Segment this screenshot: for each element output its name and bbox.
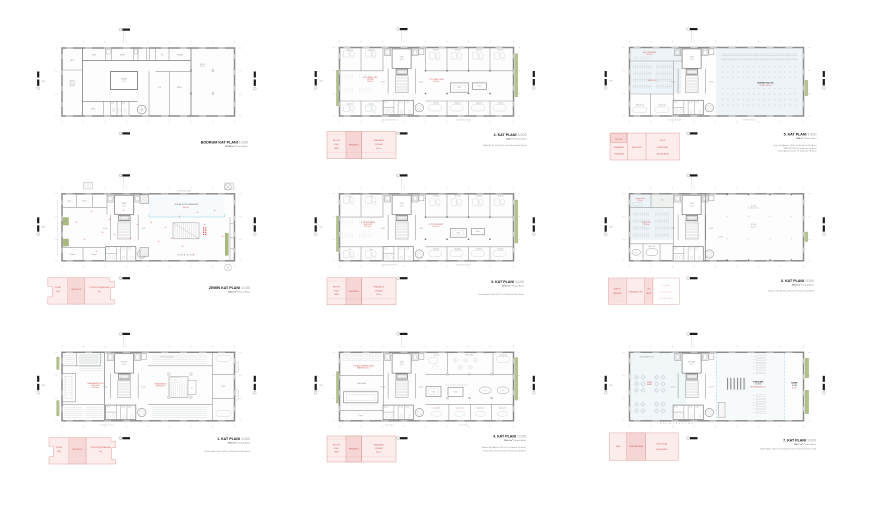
svg-text:36.40: 36.40 [690, 364, 694, 366]
svg-text:BEKLEYEN: BEKLEYEN [333, 140, 340, 142]
svg-text:B.205: B.205 [478, 86, 482, 88]
svg-text:B. 7.06: B. 7.06 [792, 388, 797, 390]
svg-text:B.304: B.304 [456, 233, 460, 235]
svg-text:S.03: S.03 [158, 87, 161, 89]
svg-text:Ofis Birimi: Ofis Birimi [433, 196, 440, 198]
svg-text:B.204: B.204 [457, 87, 461, 89]
svg-text:SS 3: SS 3 [609, 385, 612, 387]
svg-text:B.1.06: B.1.06 [751, 224, 756, 226]
svg-text:Ofis Birimi: Ofis Birimi [433, 249, 440, 251]
svg-text:K.604: K.604 [671, 228, 675, 230]
svg-text:36.40: 36.40 [400, 205, 404, 207]
svg-text:Toplantı (My Alanılar 134.2 m²: Toplantı (My Alanılar 134.2 m² Schlüssel… [481, 446, 526, 449]
svg-text:370.80 m² (Kapalı Alan): 370.80 m² (Kapalı Alan) [225, 145, 248, 148]
svg-text:SS 3: SS 3 [609, 80, 612, 82]
svg-text:36.40: 36.40 [690, 205, 694, 207]
svg-text:K.005: K.005 [142, 228, 146, 230]
svg-text:B.305: B.305 [476, 231, 480, 233]
svg-text:450.2 m² (Kapalı Alan): 450.2 m² (Kapalı Alan) [228, 441, 250, 444]
svg-text:Kafe Köş.: Kafe Köş. [434, 354, 440, 356]
svg-text:Fuaye & Ofis Alanları (120.5 m: Fuaye & Ofis Alanları (120.5 m² Schlüsse… [768, 289, 814, 292]
svg-text:B.405: B.405 [454, 392, 458, 394]
svg-text:MUTFAK: MUTFAK [688, 361, 696, 364]
svg-text:YEMEKHANE: YEMEKHANE [753, 381, 765, 384]
svg-text:Giriş: Giriş [99, 451, 102, 453]
svg-text:K.705: K.705 [709, 387, 713, 389]
svg-text:SS 3: SS 3 [609, 227, 612, 229]
svg-text:Giriş: Giriş [98, 291, 101, 293]
svg-text:GİRİŞ HOLÜ: GİRİŞ HOLÜ [178, 254, 195, 257]
svg-text:36.40: 36.40 [690, 59, 694, 61]
svg-text:6. KAT PLANI 1/100: 6. KAT PLANI 1/100 [781, 279, 814, 283]
svg-text:Ofis Birimi: Ofis Birimi [454, 249, 461, 251]
svg-text:Çalışma Od.: Çalışma Od. [499, 354, 507, 356]
svg-text:DEPO: DEPO [70, 60, 75, 62]
svg-text:K.004: K.004 [103, 228, 107, 230]
svg-text:Depo: Depo [68, 200, 72, 202]
svg-text:ATÖLYE: ATÖLYE [121, 361, 128, 364]
svg-text:Dükkan: Dükkan [70, 254, 75, 256]
svg-text:Çalışma Birimi: Çalışma Birimi [385, 424, 395, 426]
svg-text:ZEMİN KAT PLANI 1/100: ZEMİN KAT PLANI 1/100 [209, 286, 250, 290]
svg-text:B.B.01: B.B.01 [200, 64, 205, 66]
svg-text:YABUKİ 120.5 m² Schlüssel Tip: YABUKİ 120.5 m² Schlüssel Tip Birim [783, 147, 816, 150]
svg-text:500.6 m² (Kapalı Alan): 500.6 m² (Kapalı Alan) [504, 439, 526, 442]
svg-text:36.40: 36.40 [400, 59, 404, 61]
svg-text:Bekleme Od.: Bekleme Od. [636, 105, 645, 107]
svg-text:Ofis: Ofis [370, 196, 373, 198]
svg-text:K.305: K.305 [419, 228, 423, 230]
svg-text:Dükkan: Dükkan [91, 254, 96, 256]
svg-text:5. KAT PLANI 1/100: 5. KAT PLANI 1/100 [784, 132, 817, 136]
svg-text:Mutfak Alanı (345.75 m² Schlüs: Mutfak Alanı (345.75 m² Schlüssel Tipi m… [760, 448, 816, 451]
svg-text:Kiralanabilir Ofisler (34.8 m²: Kiralanabilir Ofisler (34.8 m² Schlüssel… [483, 449, 526, 452]
svg-text:SEMİNER SALONU: SEMİNER SALONU [757, 82, 774, 85]
svg-text:Ofis: Ofis [349, 249, 352, 251]
svg-text:36.40: 36.40 [122, 205, 126, 207]
svg-text:Ofis Birimi: Ofis Birimi [497, 249, 504, 251]
svg-text:K.102: K.102 [103, 387, 107, 389]
svg-text:500.7 m² (Kapalı Alan): 500.7 m² (Kapalı Alan) [794, 443, 816, 446]
svg-text:236.20: 236.20 [200, 66, 204, 68]
svg-text:SS 3: SS 3 [42, 385, 45, 387]
svg-text:Çalışma Od.: Çalışma Od. [456, 408, 464, 410]
svg-text:Y E R L E Ş K E P L A N I: Y E R L E Ş K E P L A N I [657, 422, 696, 425]
svg-text:Çeşurf Alanılar 120.5 m² Schlü: Çeşurf Alanılar 120.5 m² Schlüssel Tip B… [777, 150, 816, 153]
svg-text:K.404: K.404 [381, 387, 385, 389]
svg-text:BODRUM KAT PLANI 1/100: BODRUM KAT PLANI 1/100 [201, 141, 248, 145]
svg-text:Ofis Birimi: Ofis Birimi [454, 196, 461, 198]
svg-text:1. KAT PLANI 1/100: 1. KAT PLANI 1/100 [217, 437, 250, 441]
svg-text:B.404: B.404 [432, 391, 436, 393]
svg-text:4 Adet A Tipi Ofis (500.5 m² S: 4 Adet A Tipi Ofis (500.5 m² Schlüssel P… [483, 144, 527, 147]
svg-text:500 m² (Kapalı Alan): 500 m² (Kapalı Alan) [796, 137, 816, 140]
svg-text:SS 3: SS 3 [319, 227, 322, 229]
svg-text:3. KAT PLANI 1/100: 3. KAT PLANI 1/100 [491, 280, 524, 284]
svg-text:S.104: S.104 [221, 386, 225, 388]
svg-text:K.504: K.504 [671, 82, 675, 84]
svg-text:Ofis Birimi: Ofis Birimi [497, 196, 504, 198]
svg-text:Çalışma Od.: Çalışma Od. [433, 408, 441, 410]
svg-text:4. KAT PLANI 1/100: 4. KAT PLANI 1/100 [493, 435, 526, 439]
svg-text:K.505: K.505 [709, 82, 713, 84]
svg-text:36.40: 36.40 [400, 364, 404, 366]
svg-text:SS 3: SS 3 [42, 81, 45, 83]
svg-text:Fuaye: Fuaye [358, 415, 362, 417]
svg-text:86.40: 86.40 [122, 81, 126, 83]
svg-text:36.40: 36.40 [122, 364, 126, 366]
svg-text:K.704: K.704 [671, 387, 675, 389]
svg-text:SS 3: SS 3 [319, 385, 322, 387]
svg-text:2. KAT PLANI 1/100: 2. KAT PLANI 1/100 [494, 133, 527, 137]
svg-text:Çalışma Od.: Çalışma Od. [499, 408, 507, 410]
svg-text:BEKLEYEN: BEKLEYEN [333, 287, 340, 289]
svg-text:Banyo: Banyo [370, 104, 374, 106]
svg-text:K.204: K.204 [381, 82, 385, 84]
svg-text:500.2 m² (Kapalı Alan): 500.2 m² (Kapalı Alan) [228, 291, 250, 294]
svg-text:K.605: K.605 [709, 228, 713, 230]
svg-text:Kiralanabilir Ofisler (211.5 m: Kiralanabilir Ofisler (211.5 m² Schlüsse… [479, 293, 525, 296]
svg-text:500 m² (Kapalı Alan): 500 m² (Kapalı Alan) [506, 137, 526, 140]
svg-text:SS 3: SS 3 [319, 80, 322, 82]
svg-text:B.1.08: B.1.08 [718, 236, 723, 238]
svg-text:Ofis Birimi: Ofis Birimi [476, 196, 483, 198]
svg-text:SOSYAL ETKİLEŞİM ALANI: SOSYAL ETKİLEŞİM ALANI [174, 203, 198, 206]
svg-text:501.2 m² (Kapalı Alan): 501.2 m² (Kapalı Alan) [502, 284, 524, 287]
svg-text:500.9 m² (Kapalı Alan): 500.9 m² (Kapalı Alan) [792, 284, 814, 287]
svg-text:Çalışma Birimi: Çalışma Birimi [459, 424, 469, 426]
svg-text:Çalışma Od.: Çalışma Od. [477, 408, 485, 410]
svg-text:Kiralanabilir Ofisler (420.5 m: Kiralanabilir Ofisler (420.5 m² Schlüsse… [205, 450, 251, 453]
svg-text:Proje Ofis Alanları (120.5 m²: Proje Ofis Alanları (120.5 m² Schlüssel … [773, 144, 817, 147]
svg-text:YEMEK: YEMEK [647, 382, 654, 384]
svg-text:K.405: K.405 [419, 387, 423, 389]
svg-text:BEKLEYEN: BEKLEYEN [333, 444, 340, 446]
svg-text:Ofis Birimi: Ofis Birimi [476, 249, 483, 251]
svg-text:K.304: K.304 [381, 228, 385, 230]
svg-text:7. KAT PLANI 1/100: 7. KAT PLANI 1/100 [783, 438, 816, 442]
svg-text:K.205: K.205 [419, 82, 423, 84]
svg-text:K.103: K.103 [142, 387, 146, 389]
svg-text:Ofis: Ofis [349, 196, 352, 198]
svg-text:B.1.06: B.1.06 [751, 205, 756, 207]
svg-text:WC: WC [191, 387, 193, 389]
svg-text:SS 3: SS 3 [42, 227, 45, 229]
svg-text:SAHNE: SAHNE [791, 382, 798, 385]
